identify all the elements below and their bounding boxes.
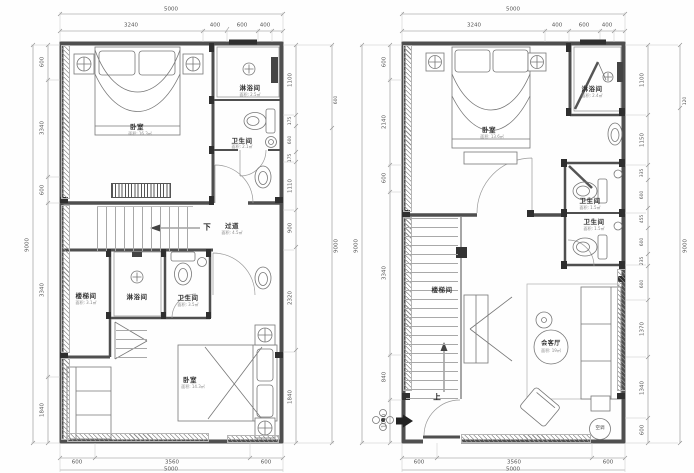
dim-label: 1100	[288, 73, 294, 87]
room-label-corridor: 过道	[225, 223, 239, 230]
room-area: 面积: 16.3㎡	[128, 132, 152, 136]
sofa-left	[67, 367, 111, 439]
dim-label: 1840	[288, 390, 294, 404]
dim-label: 600	[261, 460, 272, 466]
side-table	[591, 396, 610, 411]
dim-label: 1840	[40, 403, 46, 417]
bed-right	[452, 47, 530, 164]
dim-label: 3560	[507, 460, 521, 466]
radiator	[112, 184, 170, 197]
room-area: 面积: 4.5㎡	[222, 231, 243, 235]
entrance-marker	[373, 410, 414, 431]
dim-label: 600	[640, 425, 646, 436]
dim-label: 335	[641, 169, 646, 178]
dim-label: 600	[603, 460, 614, 466]
dim-label: 175	[289, 154, 294, 163]
dim-label: 600	[641, 280, 646, 289]
ac-label: 空调	[596, 427, 605, 432]
room-label-bath1: 卫生间	[580, 198, 601, 205]
room-label-bath2: 卫生间	[584, 219, 605, 226]
dim-label: 3240	[467, 23, 481, 29]
wall-hatch	[68, 434, 208, 441]
dim-label: 1150	[640, 133, 646, 147]
dim-label: 1080	[382, 414, 388, 428]
room-area: 面积: 2.1㎡	[232, 145, 253, 149]
room-area: 面积: 2.5㎡	[240, 93, 261, 97]
wall-hatch	[62, 206, 69, 352]
dim-label: 5000	[164, 467, 178, 473]
entrance-door-leaf	[423, 436, 460, 439]
shower-right	[574, 47, 623, 111]
wall-hatch	[618, 270, 625, 390]
dim-label: 600	[579, 23, 590, 29]
dim-label: 455	[641, 215, 646, 224]
dim-label: 600	[40, 185, 46, 196]
stair-treads-corridor	[97, 206, 193, 251]
down-label: 下	[203, 223, 211, 231]
dim-label: 900	[288, 223, 294, 234]
room-area: 面积: 14.3㎡	[181, 385, 205, 389]
dim-label: 5000	[164, 7, 178, 13]
dim-label: 600	[40, 57, 46, 68]
dim-label: 9000	[25, 238, 31, 252]
dim-label: 600	[289, 136, 294, 145]
dim-label: 840	[382, 372, 388, 383]
dim-label: 9000	[683, 239, 689, 253]
shower-bottom	[114, 252, 161, 316]
dim-label: 400	[602, 23, 613, 29]
dim-label: 600	[382, 57, 388, 68]
dim-label: 5000	[506, 467, 520, 473]
dim-label: 3340	[382, 266, 388, 280]
dim-label: 600	[382, 173, 388, 184]
dim-label: 400	[210, 23, 221, 29]
wall-hatch	[404, 46, 411, 211]
room-label-bedroom: 卧室	[482, 127, 496, 134]
dim-label: 600	[72, 460, 83, 466]
room-label-shower: 淋浴间	[582, 86, 603, 93]
dim-label: 3340	[40, 283, 46, 297]
round-table	[536, 312, 552, 328]
dim-label: 3340	[40, 121, 46, 135]
console-table	[464, 295, 512, 363]
room-area: 面积: 3.5㎡	[178, 303, 199, 307]
wall-hatch	[62, 359, 69, 439]
dim-label: 175	[289, 117, 294, 126]
sofa-right	[581, 287, 621, 399]
room-label-living: 会客厅	[541, 341, 561, 347]
basin	[255, 166, 271, 289]
dim-label: 3240	[124, 23, 138, 29]
living-label-circle	[534, 330, 568, 364]
dim-label: 9000	[354, 239, 360, 253]
dim-label: 2140	[382, 115, 388, 129]
room-area: 面积: 13.6㎡	[480, 135, 504, 139]
wall-hatch	[462, 435, 590, 442]
armchair	[519, 387, 560, 427]
basin	[608, 123, 622, 145]
dim-label: 600	[237, 23, 248, 29]
room-label-bath-bottom: 卫生间	[178, 295, 199, 302]
stair-treads-winder	[116, 323, 147, 358]
dim-label: 1340	[640, 381, 646, 395]
dim-label: 1100	[640, 73, 646, 87]
dim-label: 400	[260, 23, 271, 29]
dim-label: 120	[684, 97, 689, 106]
dim-label: 600	[641, 238, 646, 247]
dim-label: 600	[335, 96, 340, 105]
wall-hatch	[62, 46, 69, 198]
room-label-bedroom-top: 卧室	[130, 124, 144, 131]
room-area: 面积: 1.5㎡	[580, 206, 601, 210]
dim-label: 9000	[334, 239, 340, 253]
room-label-stairroom: 楼梯间	[432, 287, 453, 294]
room-area: 面积: 1.5㎡	[584, 227, 605, 231]
dim-label: 600	[641, 191, 646, 200]
floorplan-canvas: 5000 3240 400 600 400 9000 600 3340 600 …	[0, 0, 694, 473]
dim-label: 1110	[288, 179, 294, 193]
room-label-shower-bottom: 淋浴间	[127, 294, 148, 301]
toilet-bottom	[171, 252, 207, 285]
room-area: 面积: 2.4㎡	[582, 94, 603, 98]
up-label: 上	[433, 393, 441, 401]
room-area: 面积: 19㎡	[541, 349, 561, 353]
room-area: 面积: 3.1㎡	[76, 301, 97, 305]
stair-treads-right	[406, 217, 458, 399]
room-label-stair: 楼梯间	[76, 293, 97, 300]
dim-label: 235	[641, 257, 646, 266]
dim-label: 1370	[640, 322, 646, 336]
dim-label: 3560	[165, 460, 179, 466]
dim-label: 400	[552, 23, 563, 29]
dim-label: 600	[414, 460, 425, 466]
room-label-bedroom-bottom: 卧室	[183, 377, 197, 384]
dim-label: 5000	[506, 7, 520, 13]
room-label-shower-top: 淋浴间	[240, 85, 261, 92]
dim-label: 2320	[288, 291, 294, 305]
wall-hatch	[228, 436, 278, 442]
